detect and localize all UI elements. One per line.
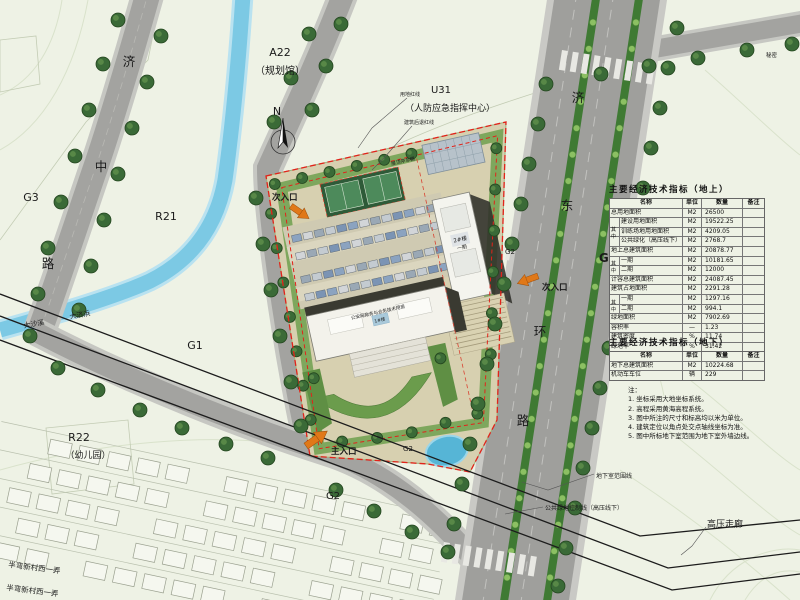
village-house (162, 549, 187, 568)
tree-highlight (258, 239, 264, 245)
tree-highlight (646, 143, 652, 149)
cell: 4209.05 (702, 228, 742, 237)
tree-highlight (473, 399, 479, 405)
bush-icon (545, 310, 551, 316)
tree-icon (51, 361, 65, 375)
village-house (45, 524, 70, 543)
tree-highlight (482, 359, 488, 365)
cell: 数量 (702, 352, 742, 361)
tree-icon (539, 77, 553, 91)
village-house (183, 525, 208, 544)
tree-highlight (93, 385, 99, 391)
note-line: 3. 图中所注的尺寸和标高均以米为单位。 (628, 414, 800, 423)
tree-icon (661, 61, 675, 75)
green-control-label: 公共绿地控制线（高压线下） (545, 504, 623, 512)
tree-highlight (113, 169, 119, 175)
cell (743, 276, 764, 285)
cell (743, 362, 764, 371)
village-house (153, 519, 178, 538)
group-label: 其中 (611, 257, 619, 276)
tree-icon (219, 437, 233, 451)
tree-icon (642, 59, 656, 73)
tree-icon (740, 43, 754, 57)
cell: 备注 (743, 199, 764, 208)
village-house (57, 470, 82, 489)
tree-icon (455, 477, 469, 491)
bush-icon (569, 151, 575, 157)
tree-highlight (25, 331, 31, 337)
tree-icon (594, 67, 608, 81)
cell: 二期 (620, 266, 682, 275)
tree-highlight (113, 15, 119, 21)
bush-icon (592, 284, 598, 290)
cell: 辆 (683, 371, 701, 380)
village-house (200, 586, 225, 600)
notes-title: 注： (628, 386, 800, 395)
village-house (145, 488, 170, 507)
cell: 10181.65 (702, 257, 742, 266)
zone-r22: R22 (68, 431, 90, 444)
tree-highlight (296, 421, 302, 427)
tree-highlight (524, 159, 530, 165)
tree-highlight (787, 39, 793, 45)
cell (743, 314, 764, 323)
bush-icon (559, 495, 565, 501)
tree-highlight (369, 506, 375, 512)
cell: 单位 (683, 352, 701, 361)
cell: 一期 (620, 257, 682, 266)
cell: 20878.77 (702, 247, 742, 256)
tree-icon (256, 237, 270, 251)
tree-highlight (331, 485, 337, 491)
bush-icon (584, 336, 590, 342)
notes-block: 注： 1. 坐标采用大地坐标系统。 2. 高程采用黄海高程系统。 3. 图中所注… (628, 386, 800, 442)
tree-icon (31, 287, 45, 301)
cell: 二期 (620, 305, 682, 314)
hv-corridor-label: 高压走廊 (707, 518, 743, 530)
zone-a22: A22 (269, 46, 291, 59)
bush-icon (571, 416, 577, 422)
tree-icon (84, 259, 98, 273)
tree-icon (41, 241, 55, 255)
cell: 一期 (620, 295, 682, 304)
bush-icon (547, 574, 553, 580)
tree-icon (23, 329, 37, 343)
tree-icon (111, 167, 125, 181)
cell: 公共绿化（高压线下） (620, 237, 682, 246)
bush-icon (520, 469, 526, 475)
tree-icon (249, 191, 263, 205)
tree-icon (96, 57, 110, 71)
tree-highlight (251, 193, 257, 199)
village-house (16, 518, 41, 537)
cell (743, 237, 764, 246)
cell: M2 (683, 209, 701, 218)
village-house (418, 575, 443, 594)
village-house (250, 568, 275, 587)
village-house (309, 581, 334, 600)
cell: M2 (683, 276, 701, 285)
bush-icon (600, 231, 606, 237)
tree-icon (585, 421, 599, 435)
tree-highlight (663, 63, 669, 69)
tree-icon (261, 451, 275, 465)
cell: 229 (702, 371, 742, 380)
group-label: 其中 (611, 296, 619, 315)
bush-icon (620, 99, 626, 105)
setback-line-label: 建筑后退红线 (404, 119, 434, 126)
group-label: 其中 (611, 219, 619, 247)
tree-icon (522, 157, 536, 171)
tree-highlight (742, 45, 748, 51)
tree-icon (302, 27, 316, 41)
bush-icon (504, 574, 510, 580)
tree-icon (551, 579, 565, 593)
tree-icon (670, 21, 684, 35)
indicators-below-table: 名称 单位 数量 备注 地下总建筑面积M210224.68 机动车车位辆229 (609, 351, 765, 381)
cell: 10224.68 (702, 362, 742, 371)
bush-icon (551, 548, 557, 554)
village-house (341, 502, 366, 521)
tree-highlight (177, 423, 183, 429)
side-entrance-left-label: 次入口 (272, 192, 298, 203)
village-house (0, 542, 20, 561)
bush-icon (586, 46, 592, 52)
tree-icon (140, 75, 154, 89)
cell: M2 (683, 218, 701, 227)
bush-icon (629, 46, 635, 52)
tree-icon (133, 403, 147, 417)
tree-highlight (53, 363, 59, 369)
cell (743, 247, 764, 256)
tree-highlight (443, 547, 449, 553)
village-house (7, 488, 32, 507)
tree-icon (471, 397, 485, 411)
village-house (241, 538, 266, 557)
tree-icon (319, 59, 333, 73)
tree-highlight (541, 79, 547, 85)
tree-highlight (142, 77, 148, 83)
tree-highlight (321, 61, 327, 67)
tree-highlight (644, 61, 650, 67)
note-line: 2. 高程采用黄海高程系统。 (628, 405, 800, 414)
village-house (409, 545, 434, 564)
tree-icon (111, 13, 125, 27)
site-plan-sheet: 屋顶停车棚 2#楼 一期 公安局政务与业务技术用房 1#楼 (0, 0, 800, 600)
cell: 容积率 (610, 324, 682, 333)
village-house (224, 477, 249, 496)
tree-icon (559, 541, 573, 555)
bush-icon (557, 231, 563, 237)
basement-line-label: 地下室范围线 (596, 472, 632, 480)
tree-icon (91, 383, 105, 397)
cell: 建设用地面积 (620, 218, 682, 227)
village-house (171, 580, 196, 599)
cell: M2 (683, 362, 701, 371)
tree-highlight (336, 19, 342, 25)
cell: M2 (683, 257, 701, 266)
tree-highlight (98, 59, 104, 65)
cell: 名称 (610, 352, 682, 361)
tree-icon (644, 141, 658, 155)
zone-g2-south: G2 (326, 491, 340, 502)
zone-u31: U31 (431, 85, 451, 96)
cell: M2 (683, 314, 701, 323)
bush-icon (575, 389, 581, 395)
north-label: N (273, 105, 281, 118)
bush-icon (563, 469, 569, 475)
cell: 计容总建筑面积 (610, 276, 682, 285)
tree-icon (154, 29, 168, 43)
cell (743, 228, 764, 237)
side-entrance-right-label: 次入口 (542, 282, 568, 293)
tree-highlight (221, 439, 227, 445)
cell (743, 209, 764, 218)
village-house (27, 463, 52, 482)
tree-icon (480, 357, 494, 371)
cell: 机动车车位 (610, 371, 682, 380)
village-house (83, 561, 108, 580)
village-house (192, 556, 217, 575)
zone-g2-roadside: G2 (505, 248, 515, 256)
village-house (233, 507, 258, 526)
tree-highlight (587, 423, 593, 429)
bush-icon (590, 19, 596, 25)
bush-icon (532, 389, 538, 395)
cell: 数量 (702, 199, 742, 208)
bush-icon (565, 178, 571, 184)
tree-icon (82, 103, 96, 117)
tree-icon (367, 504, 381, 518)
cell (743, 295, 764, 304)
tree-highlight (693, 53, 699, 59)
village-street-label-2: 半弯新村西一弄 (6, 582, 60, 598)
zone-r22-name: （幼儿园） (65, 449, 110, 461)
bush-icon (633, 19, 639, 25)
tree-icon (691, 51, 705, 65)
tree-icon (593, 381, 607, 395)
village-house (65, 500, 90, 519)
cell (743, 371, 764, 380)
village-house (136, 458, 161, 477)
cell: 994.1 (702, 305, 742, 314)
tree-icon (514, 197, 528, 211)
tree-highlight (449, 519, 455, 525)
tree-icon (447, 517, 461, 531)
tree-icon (264, 283, 278, 297)
village-house (379, 538, 404, 557)
tree-icon (405, 525, 419, 539)
tree-highlight (672, 23, 678, 29)
tree-icon (488, 317, 502, 331)
village-house (329, 556, 354, 575)
village-house (271, 544, 296, 563)
tree-icon (284, 375, 298, 389)
village-house (282, 489, 307, 508)
tree-icon (463, 437, 477, 451)
tree-highlight (596, 69, 602, 75)
zone-g3: G3 (23, 191, 39, 204)
road-jizhong-char2: 路 (42, 256, 55, 271)
village-house (115, 482, 140, 501)
cell: M2 (683, 305, 701, 314)
road-jidonghuan-char2: 环 (534, 324, 547, 339)
tree-highlight (99, 215, 105, 221)
tree-highlight (84, 105, 90, 111)
cell: 7902.69 (702, 314, 742, 323)
tree-icon (54, 195, 68, 209)
village-house (112, 567, 137, 586)
red-line-label: 用地红线 (400, 91, 420, 98)
village-house (221, 562, 246, 581)
tree-icon (497, 277, 511, 291)
zone-r21: R21 (155, 210, 177, 223)
cell: 单位 (683, 199, 701, 208)
cell (743, 324, 764, 333)
tree-icon (576, 461, 590, 475)
bush-icon (612, 151, 618, 157)
cell: 26500 (702, 209, 742, 218)
tree-highlight (307, 105, 313, 111)
tree-highlight (86, 261, 92, 267)
cell: 19522.25 (702, 218, 742, 227)
tree-highlight (127, 123, 133, 129)
cell: M2 (683, 285, 701, 294)
cell: M2 (683, 295, 701, 304)
cell: 备注 (743, 352, 764, 361)
tree-icon (441, 545, 455, 559)
road-jidonghuan-char3: 路 (517, 413, 530, 428)
bush-icon (512, 521, 518, 527)
village-house (338, 587, 363, 600)
bush-icon (516, 495, 522, 501)
village-house (368, 593, 393, 600)
zone-g2-site: G2 (403, 445, 413, 453)
indicators-below-title: 主要经济技术指标（地下） (609, 336, 765, 348)
tree-highlight (407, 527, 413, 533)
main-entrance-label: 主入口 (331, 446, 357, 457)
cell: M2 (683, 237, 701, 246)
tree-highlight (655, 103, 661, 109)
village-house (291, 520, 316, 539)
village-house (212, 531, 237, 550)
village-house (74, 531, 99, 550)
cell: 绿地面积 (610, 314, 682, 323)
tree-icon (785, 37, 799, 51)
tree-icon (653, 101, 667, 115)
zone-a22-name: （规划馆） (255, 64, 305, 77)
indicators-above-title: 主要经济技术指标（地上） (609, 183, 765, 195)
confidential-mark: 秘密 (766, 51, 778, 59)
village-house (321, 526, 346, 545)
tree-highlight (135, 405, 141, 411)
tree-highlight (263, 453, 269, 459)
bush-icon (528, 416, 534, 422)
cell: 地上总建筑面积 (610, 247, 682, 256)
cell: 总用地面积 (610, 209, 682, 218)
village-house (203, 501, 228, 520)
bush-icon (616, 125, 622, 131)
tree-highlight (70, 151, 76, 157)
bush-icon (580, 363, 586, 369)
cell: 24087.45 (702, 276, 742, 285)
bush-icon (573, 125, 579, 131)
cell: 建筑占地面积 (610, 285, 682, 294)
note-line: 1. 坐标采用大地坐标系统。 (628, 395, 800, 404)
tree-highlight (578, 463, 584, 469)
cell (743, 266, 764, 275)
village-house (359, 563, 384, 582)
tree-highlight (43, 243, 49, 249)
tree-highlight (56, 197, 62, 203)
tree-icon (125, 121, 139, 135)
tree-icon (294, 419, 308, 433)
tree-icon (97, 213, 111, 227)
tree-highlight (499, 279, 505, 285)
tree-highlight (553, 581, 559, 587)
tree-highlight (74, 305, 80, 311)
tree-highlight (156, 31, 162, 37)
tree-icon (305, 103, 319, 117)
village-house (133, 543, 158, 562)
cell (743, 218, 764, 227)
tree-highlight (595, 383, 601, 389)
tree-highlight (304, 29, 310, 35)
cell (743, 285, 764, 294)
note-line: 5. 图中所标地下室范围为地下室外墙边线。 (628, 432, 800, 441)
cell: 2291.28 (702, 285, 742, 294)
cell: 名称 (610, 199, 682, 208)
cell (743, 305, 764, 314)
cell: M2 (683, 266, 701, 275)
tree-icon (175, 421, 189, 435)
tree-highlight (507, 239, 513, 245)
village-house (142, 574, 167, 593)
tree-highlight (533, 119, 539, 125)
cell: — (683, 324, 701, 333)
tree-highlight (33, 289, 39, 295)
cell: 训练场地用地面积 (620, 228, 682, 237)
road-jidonghuan-char1: 东 (561, 198, 574, 213)
tree-highlight (561, 543, 567, 549)
zone-g1: G1 (187, 339, 203, 352)
village-house (86, 476, 111, 495)
tree-icon (273, 329, 287, 343)
village-house (253, 483, 278, 502)
village-house (262, 513, 287, 532)
tree-highlight (266, 285, 272, 291)
tree-icon (531, 117, 545, 131)
cell (743, 257, 764, 266)
bush-icon (553, 257, 559, 263)
indicators-below-panel: 主要经济技术指标（地下） 名称 单位 数量 备注 地下总建筑面积M210224.… (609, 336, 765, 381)
bush-icon (567, 442, 573, 448)
cell: 12000 (702, 266, 742, 275)
bush-icon (537, 363, 543, 369)
cell: 2768.7 (702, 237, 742, 246)
tree-highlight (286, 377, 292, 383)
tree-icon (334, 17, 348, 31)
cell: 1.23 (702, 324, 742, 333)
road-jizhong-char1: 中 (95, 159, 108, 174)
zone-u31-name: （人防应急指挥中心） (405, 102, 495, 114)
village-house (36, 494, 61, 513)
road-jizhong-char0: 济 (123, 54, 136, 69)
tree-icon (68, 149, 82, 163)
tree-highlight (516, 199, 522, 205)
tree-highlight (457, 479, 463, 485)
cell: M2 (683, 228, 701, 237)
